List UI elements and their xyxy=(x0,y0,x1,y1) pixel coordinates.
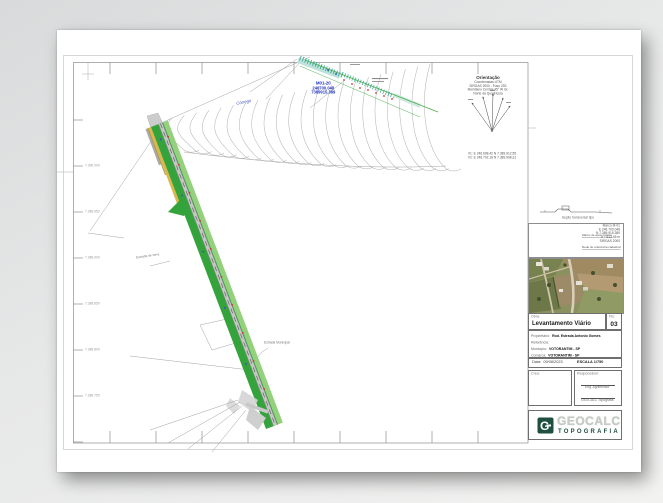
fls-value: 03 xyxy=(607,321,621,328)
orientation-lines: Coordenadas UTMSIRGAS 2000 - Fuso 23SMer… xyxy=(450,80,526,96)
sketch-annotation-1: Marco de apoio básico xyxy=(582,234,612,238)
title-block-obra-cell: Obra: Levantamento Viário xyxy=(528,313,606,330)
aerial-photo-image xyxy=(529,259,623,313)
sketch-annotation-2: Rede de referência cadastral xyxy=(582,246,621,250)
grid-coordinate-label: 7.389.850 xyxy=(85,302,100,305)
responsible-cell: Responsável: Eng. Agrimensor GEOCALC Top… xyxy=(574,370,622,406)
logo-cell: G GEOCALC TOPOGRAFIA xyxy=(528,410,622,440)
grid-coordinate-label: 7.389.900 xyxy=(85,256,100,259)
date-text: Data: 09/08/2023 xyxy=(532,360,563,364)
signature-caption-1: Eng. Agrimensor xyxy=(577,386,617,389)
survey-point-label: M01-20 246700.048 7389915.389 xyxy=(298,81,349,95)
grid-coordinate-label: 7.389.750 xyxy=(85,394,100,397)
road-label-bottom: Estrada Municipal xyxy=(264,341,290,345)
title-block-fls-cell: Fls: 03 xyxy=(606,313,622,330)
orientation-line: Norte da Quadrícula xyxy=(450,92,526,96)
logo-subtext: TOPOGRAFIA xyxy=(558,429,620,435)
obra-label: Obra: xyxy=(531,315,540,319)
aerial-photo xyxy=(528,258,624,314)
geocalc-logo-icon: G xyxy=(537,417,554,434)
grid-coordinate-label: 7.389.800 xyxy=(85,348,100,351)
grid-coordinate-label: 7.390.000 xyxy=(85,164,100,167)
title-block: Obra: Levantamento Viário Fls: 03 Propri… xyxy=(528,313,622,440)
signature-caption-2: GEOCALC Topografia xyxy=(577,399,617,402)
grid-coordinate-label: 7.389.950 xyxy=(85,210,100,213)
sketch-line: SIRGAS 2000 xyxy=(560,239,620,243)
title-block-info-cell: Proprietário:Rod. Estrada Antonio GomesR… xyxy=(528,330,622,358)
logo-text: GEOCALC xyxy=(557,414,621,428)
page-background: Orientação Coordenadas UTMSIRGAS 2000 - … xyxy=(0,0,663,503)
crea-cell: Crea: xyxy=(528,370,572,406)
title-block-date-scale-cell: Data: 09/08/2023 ESCALA 1/750 xyxy=(528,358,622,368)
titleblock-rows: Proprietário:Rod. Estrada Antonio GomesR… xyxy=(531,333,618,359)
responsible-label: Responsável: xyxy=(577,372,599,376)
cross-section-caption: Seção transversal tipo xyxy=(538,216,618,220)
obra-value: Levantamento Viário xyxy=(532,321,591,327)
crea-label: Crea: xyxy=(531,372,540,376)
fls-label: Fls: xyxy=(609,315,615,319)
orientation-footer-line: V2: E 246.702,18 N 7.389.908,31 xyxy=(448,156,536,160)
orientation-footer: V1: E 246.698,42 N 7.389.912,55V2: E 246… xyxy=(448,152,536,160)
scale-text: ESCALA 1/750 xyxy=(577,360,603,364)
orientation-block: Orientação Coordenadas UTMSIRGAS 2000 - … xyxy=(450,75,526,96)
survey-point-northing: 7389915.389 xyxy=(298,91,349,96)
